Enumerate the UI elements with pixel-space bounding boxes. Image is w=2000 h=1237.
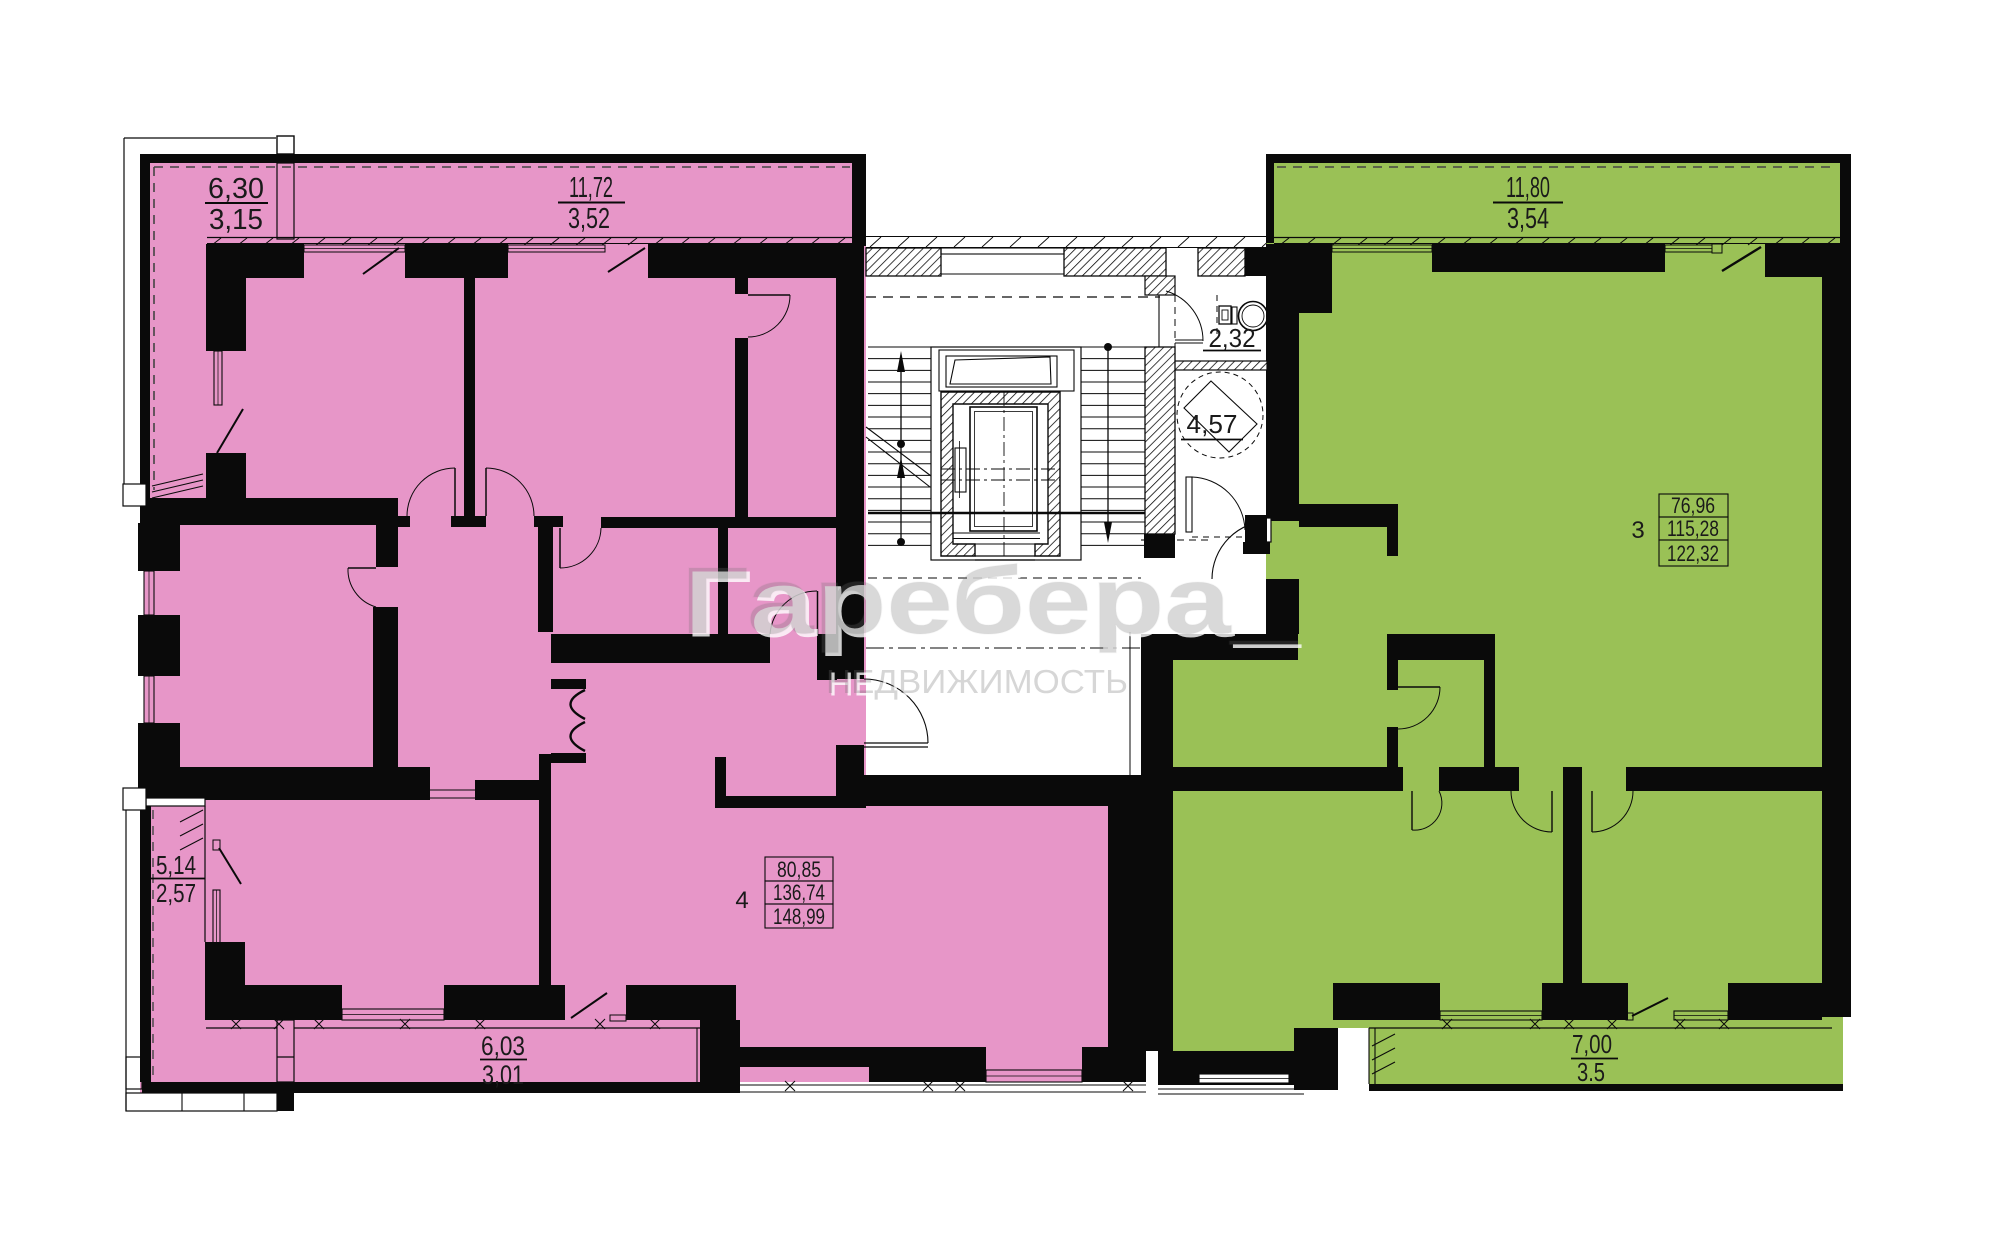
svg-text:4: 4 [735,887,748,914]
svg-text:Гаребера_: Гаребера_ [681,548,1298,654]
svg-text:80,85: 80,85 [777,857,821,882]
svg-text:3,15: 3,15 [209,204,263,236]
svg-text:122,32: 122,32 [1667,541,1719,566]
svg-text:11,72: 11,72 [569,172,613,204]
svg-text:3.5: 3.5 [1577,1057,1605,1087]
svg-text:3: 3 [1631,517,1644,544]
svg-text:3,52: 3,52 [568,203,610,235]
svg-text:11,80: 11,80 [1506,172,1550,204]
svg-text:76,96: 76,96 [1671,493,1715,518]
svg-text:3,54: 3,54 [1507,203,1549,235]
svg-text:4,57: 4,57 [1187,409,1238,439]
svg-text:6,03: 6,03 [481,1031,525,1061]
svg-text:7,00: 7,00 [1572,1029,1612,1059]
svg-text:5,14: 5,14 [156,850,196,880]
svg-text:115,28: 115,28 [1667,516,1719,541]
svg-text:148,99: 148,99 [773,904,825,929]
svg-text:2,57: 2,57 [156,878,196,908]
svg-text:6,30: 6,30 [208,173,264,205]
svg-text:3,01: 3,01 [482,1060,524,1090]
svg-text:2,32: 2,32 [1209,323,1256,353]
svg-text:136,74: 136,74 [773,880,825,905]
svg-text:НЕДВИЖИМОСТЬ: НЕДВИЖИМОСТЬ [826,663,1128,700]
